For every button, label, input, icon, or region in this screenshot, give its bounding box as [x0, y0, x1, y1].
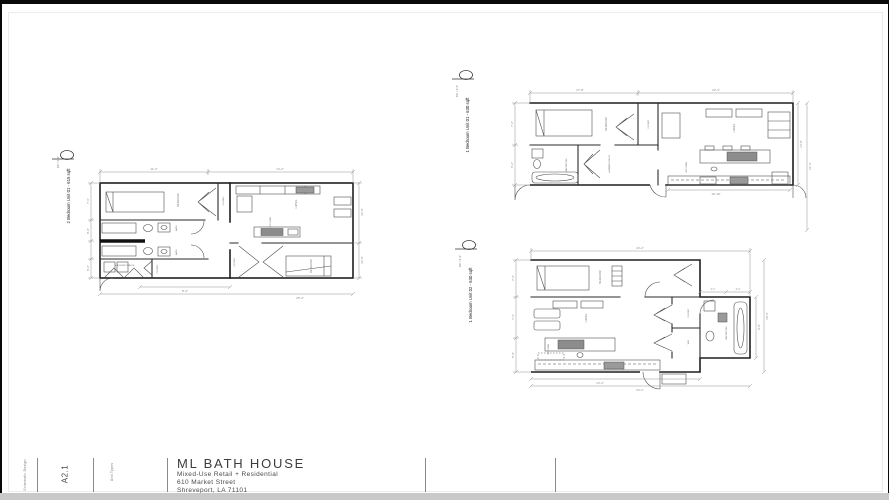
- svg-text:24'-2": 24'-2": [636, 388, 644, 392]
- plan2-scale-note: 1/4" = 1'-0": [456, 85, 459, 97]
- plan3-dresser: [612, 266, 622, 286]
- plan1-bed-2: [286, 256, 331, 276]
- svg-text:25'-4": 25'-4": [296, 296, 304, 300]
- plan2-label-laundry: LAUNDRY/MECH: [608, 155, 611, 173]
- plan1-closet-door-1: [198, 188, 216, 216]
- plan1-label-closet3: CLOSET: [234, 257, 236, 267]
- plan2-bathroom-fixtures: [532, 149, 578, 183]
- svg-text:5'-8": 5'-8": [511, 352, 515, 358]
- plan2-label-closet: CLOSET: [648, 119, 650, 129]
- plan2-label-living: LIVING: [733, 123, 736, 132]
- svg-text:7'-2": 7'-2": [511, 314, 515, 320]
- plan1-label-bedroom2: BEDROOM: [310, 259, 313, 273]
- svg-text:18'-6": 18'-6": [765, 312, 769, 320]
- svg-text:12'-0": 12'-0": [360, 256, 364, 264]
- plan3-1br-unit-02: 1/4" = 1'-0" 1 Bedroom Unit 02 - 630 sqf…: [455, 241, 769, 393]
- plan1-kitchen-counter: [236, 186, 351, 217]
- svg-text:8'-0": 8'-0": [86, 228, 90, 234]
- plan3-entry-door: [643, 372, 686, 389]
- title-block-mid-stamp: Unit Types: [110, 463, 114, 481]
- title-block-left-stamp: Schematic Design: [23, 459, 27, 490]
- title-block-divider: [37, 458, 38, 492]
- plan1-unit-label: 2 Bedroom Unit 01 - 615 sqft: [66, 168, 71, 224]
- plan3-label-kitchen: KITCHEN: [548, 343, 550, 354]
- project-name: ML BATH HOUSE: [177, 457, 305, 471]
- svg-text:12'-0": 12'-0": [360, 208, 364, 216]
- plan3-closet-doors: [654, 305, 672, 351]
- plan1-kitchen-island: [254, 227, 300, 237]
- plan3-label-bathroom: BATHROOM: [725, 326, 728, 339]
- project-address-line1: 610 Market Street: [177, 479, 305, 487]
- plan3-bed: [537, 266, 589, 290]
- plan1-scale-note: 1/4" = 1'-0": [57, 156, 60, 168]
- plan2-label-kitchen: KITCHEN: [686, 161, 688, 172]
- plan1-dimensions: 11'-2" 14'-2" 7'-6" 8'-0" 8'-6" 12'-0" 1…: [86, 167, 364, 300]
- svg-text:6'-2": 6'-2": [510, 162, 514, 168]
- plan3-kitchen-island: [545, 338, 615, 358]
- plan3-scale-note: 1/4" = 1'-0": [459, 255, 462, 267]
- plan1-walls: [100, 183, 353, 278]
- plan1-label-living: LIVING: [295, 199, 298, 208]
- plan2-label-bedroom: BEDROOM: [605, 117, 608, 131]
- svg-text:4'-2": 4'-2": [736, 288, 741, 291]
- plan3-bedroom-closet-door: [674, 264, 692, 286]
- viewport-bottom-bar: [0, 493, 889, 500]
- plan1-callout-bubble: [52, 151, 74, 160]
- title-block-divider: [167, 458, 168, 492]
- plan3-label-closet: CLOSET: [688, 308, 690, 318]
- plan1-label-bath2: BATH: [175, 249, 178, 255]
- title-block-divider: [425, 458, 426, 492]
- plan1-label-closet1: CLOSET: [223, 196, 225, 206]
- svg-text:8'-6": 8'-6": [86, 265, 90, 271]
- plan2-closet-door: [616, 114, 634, 140]
- plan3-label-bedroom: BEDROOM: [599, 270, 602, 284]
- plan2-entry-door: [515, 185, 806, 200]
- plan2-label-bathroom: BATHROOM: [565, 158, 568, 171]
- svg-text:22'-4": 22'-4": [712, 88, 720, 92]
- plan2-walls: [530, 103, 793, 185]
- project-info: ML BATH HOUSE Mixed-Use Retail + Residen…: [177, 457, 305, 494]
- title-block-divider: [93, 458, 94, 492]
- svg-text:13'-8": 13'-8": [799, 140, 803, 148]
- svg-text:21'-6": 21'-6": [808, 162, 812, 170]
- svg-text:19'-10": 19'-10": [711, 192, 720, 196]
- plan1-2br-unit-01: 1/4" = 1'-0" 2 Bedroom Unit 01 - 615 sqf…: [52, 151, 364, 301]
- plan1-label-bedroom1: BEDROOM: [177, 193, 180, 207]
- svg-text:24'-2": 24'-2": [636, 246, 644, 250]
- svg-text:14'-4": 14'-4": [596, 381, 604, 385]
- svg-text:11'-2": 11'-2": [150, 167, 157, 171]
- svg-text:7'-6": 7'-6": [511, 275, 515, 281]
- plan2-bed: [536, 110, 592, 136]
- plan2-unit-label: 1 Bedroom Unit 01 - 630 sqft: [465, 97, 470, 153]
- plan2-1br-unit-01: 1/4" = 1'-0" 1 Bedroom Unit 01 - 630 sqf…: [452, 71, 812, 233]
- plan1-bed-1: [106, 192, 164, 212]
- plan3-unit-label: 1 Bedroom Unit 02 - 630 sqft: [468, 267, 473, 323]
- plan3-kitchen-counter: [535, 353, 660, 370]
- plan2-dimensions: 17'-8" 22'-4" 7'-6" 6'-2" 13'-8" 21'-6" …: [510, 88, 812, 232]
- drawing-viewport: 1/4" = 1'-0" 2 Bedroom Unit 01 - 615 sqf…: [0, 0, 889, 500]
- plan2-kitchen-island: [700, 146, 770, 171]
- svg-text:7'-6": 7'-6": [510, 121, 514, 127]
- plan2-kitchen-counter: [668, 172, 790, 185]
- svg-text:8'-4": 8'-4": [182, 289, 188, 293]
- floor-plan-linework: 1/4" = 1'-0" 2 Bedroom Unit 01 - 615 sqf…: [0, 0, 889, 500]
- sheet-number: A2.1: [61, 465, 70, 483]
- plan1-label-laundry: LAUNDRY/MECH: [116, 264, 135, 267]
- title-block-divider: [555, 458, 556, 492]
- plan2-callout-bubble: [452, 71, 474, 80]
- plan3-living-furniture: [534, 301, 603, 330]
- plan1-label-bath1: BATH: [175, 225, 178, 231]
- svg-text:14'-2": 14'-2": [276, 167, 284, 171]
- plan1-entry-door: [100, 278, 113, 291]
- svg-text:9'-8": 9'-8": [757, 324, 761, 330]
- svg-text:2'-1": 2'-1": [711, 288, 716, 291]
- plan3-callout-bubble: [455, 241, 477, 250]
- plan3-label-wd: W/D: [688, 339, 690, 344]
- plan1-laundry-fixtures: [104, 261, 152, 278]
- plan2-living-furniture: [662, 109, 790, 138]
- plan2-laundry-door: [584, 150, 600, 178]
- plan1-label-kitchen: KITCHEN: [270, 216, 272, 227]
- svg-text:17'-8": 17'-8": [576, 88, 584, 92]
- plan1-label-closet2: CLOSET: [157, 264, 159, 274]
- plan1-closet-door-2: [239, 246, 283, 277]
- plan3-label-living: LIVING: [585, 313, 588, 322]
- project-subtitle: Mixed-Use Retail + Residential: [177, 471, 305, 479]
- svg-text:7'-6": 7'-6": [86, 198, 90, 204]
